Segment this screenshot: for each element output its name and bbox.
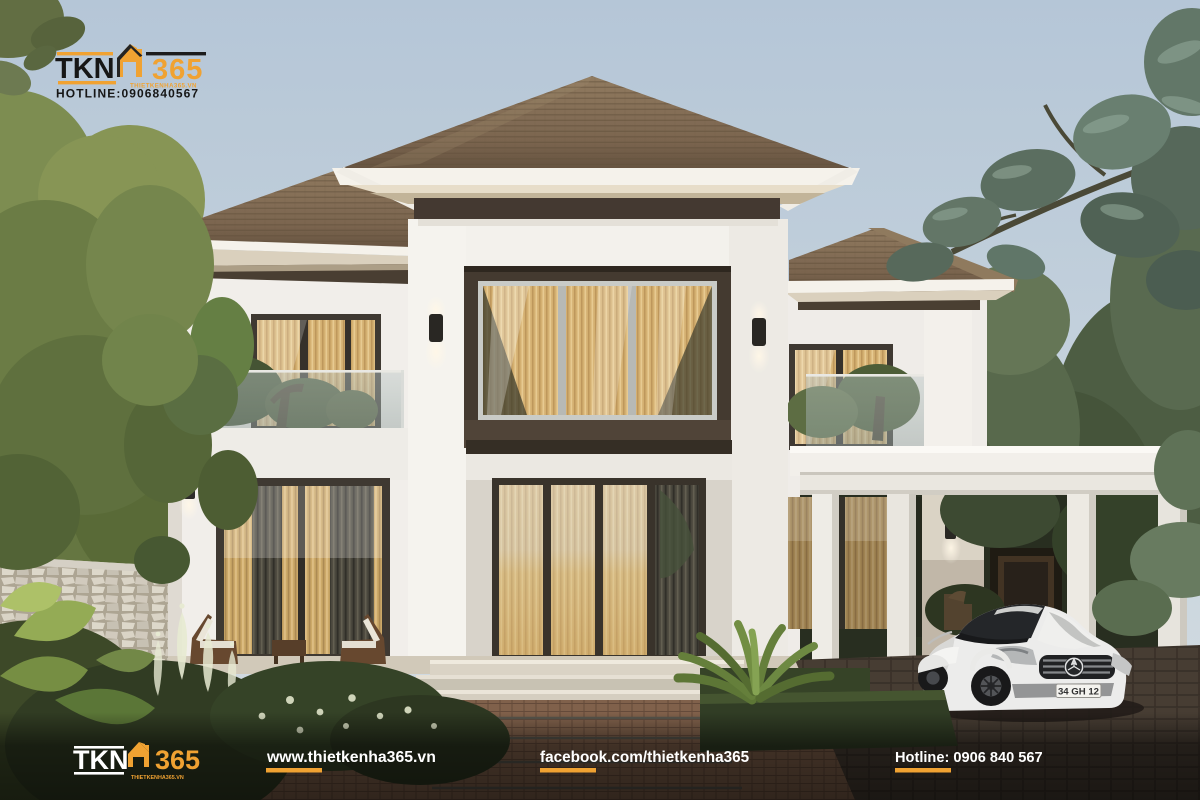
svg-text:365: 365 (152, 54, 203, 86)
svg-text:HOTLINE:0906840567: HOTLINE:0906840567 (56, 87, 199, 101)
svg-text:www.thietkenha365.vn: www.thietkenha365.vn (266, 749, 436, 766)
svg-text:TKN: TKN (73, 745, 129, 775)
svg-text:TKN: TKN (55, 53, 115, 85)
svg-text:THIETKENHA365.VN: THIETKENHA365.VN (131, 775, 184, 781)
svg-text:facebook.com/thietkenha365: facebook.com/thietkenha365 (540, 749, 750, 766)
svg-text:Hotline: 0906 840 567: Hotline: 0906 840 567 (895, 750, 1043, 766)
svg-text:365: 365 (155, 745, 200, 775)
